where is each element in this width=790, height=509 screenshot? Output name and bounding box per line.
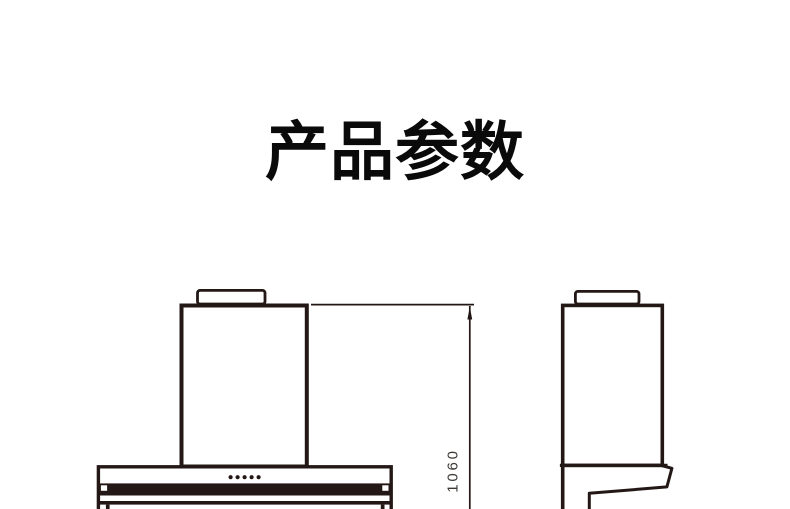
control-dot (257, 475, 261, 479)
front-panel-notch-left (101, 485, 107, 491)
height-dimension-label: 1060 (445, 448, 462, 493)
control-dot (229, 475, 233, 479)
front-inner-leg-left (106, 505, 110, 509)
front-exhaust-outlet-cap (198, 290, 266, 304)
range-hood-front-view-icon (98, 290, 391, 509)
side-chimney-body (563, 305, 663, 465)
front-inner-leg-right (381, 505, 385, 509)
technical-dimension-drawing: 1060 (0, 0, 790, 509)
dimension-arrow-up-icon (467, 307, 472, 320)
side-visor-outline (589, 466, 672, 509)
range-hood-side-view-icon (560, 291, 672, 509)
control-dot (236, 475, 240, 479)
front-bottom-rail (100, 501, 391, 505)
front-chimney-duct (182, 306, 307, 467)
front-panel-notch-right (382, 485, 388, 491)
side-exhaust-outlet-cap (575, 291, 639, 304)
control-dot (250, 475, 254, 479)
front-glass-panel-band (100, 483, 391, 495)
control-dot (243, 475, 247, 479)
